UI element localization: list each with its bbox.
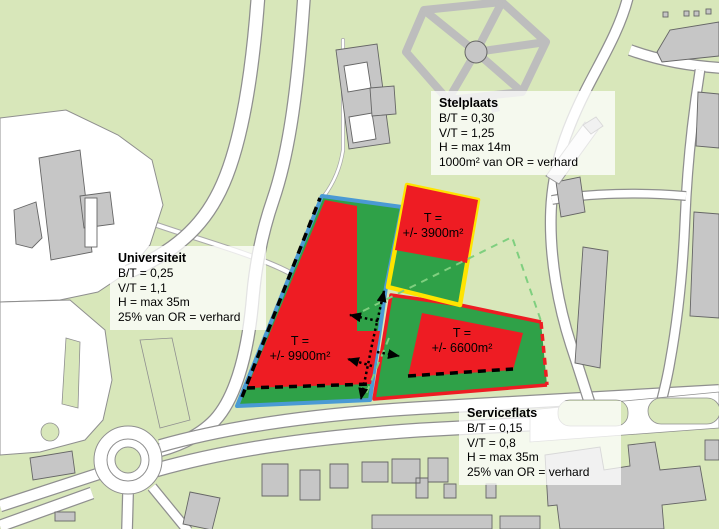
site-plan-map: Stelplaats B/T = 0,30 V/T = 1,25 H = max…	[0, 0, 719, 529]
serviceflats-param: H = max 35m	[467, 450, 613, 464]
serviceflats-param: V/T = 0,8	[467, 436, 613, 450]
roundabout	[94, 426, 162, 494]
stelplaats-param: B/T = 0,30	[439, 111, 607, 125]
universiteit-param: B/T = 0,25	[118, 266, 258, 280]
serviceflats-param: 25% van OR = verhard	[467, 465, 613, 479]
universiteit-param: 25% van OR = verhard	[118, 310, 258, 324]
universiteit-param: H = max 35m	[118, 295, 258, 309]
serviceflats-param: B/T = 0,15	[467, 421, 613, 435]
universiteit-param: V/T = 1,1	[118, 281, 258, 295]
stelplaats-param: 1000m² van OR = verhard	[439, 155, 607, 169]
stelplaats-info-box: Stelplaats B/T = 0,30 V/T = 1,25 H = max…	[431, 91, 615, 175]
stelplaats-param: V/T = 1,25	[439, 126, 607, 140]
universiteit-info-box: Universiteit B/T = 0,25 V/T = 1,1 H = ma…	[110, 246, 266, 330]
stelplaats-zone	[388, 185, 478, 305]
stelplaats-param: H = max 14m	[439, 140, 607, 154]
universiteit-title: Universiteit	[118, 251, 258, 265]
serviceflats-title: Serviceflats	[467, 406, 613, 420]
serviceflats-info-box: Serviceflats B/T = 0,15 V/T = 0,8 H = ma…	[459, 401, 621, 485]
stelplaats-title: Stelplaats	[439, 96, 607, 110]
